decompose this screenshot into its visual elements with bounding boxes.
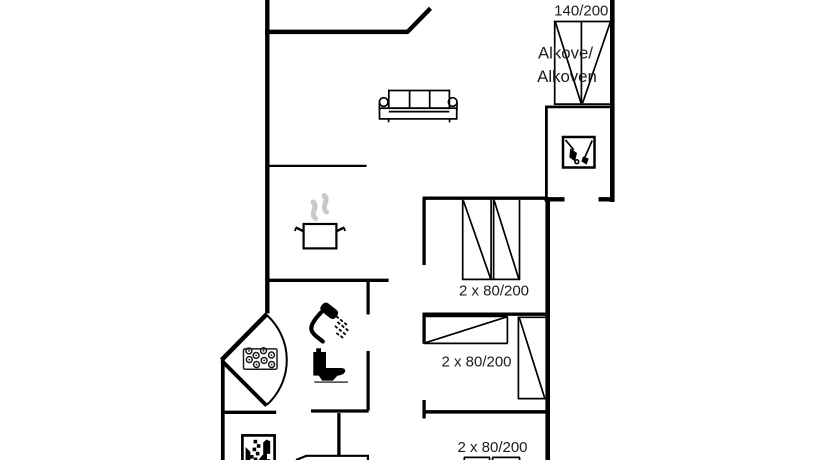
svg-text:2 x 80/200: 2 x 80/200 — [441, 354, 511, 371]
svg-text:Alkoven: Alkoven — [537, 67, 597, 86]
svg-text:140/200: 140/200 — [554, 3, 608, 20]
svg-text:2 x 80/200: 2 x 80/200 — [459, 283, 529, 300]
svg-text:Alkove/: Alkove/ — [538, 44, 593, 63]
svg-text:2 x 80/200: 2 x 80/200 — [457, 439, 527, 456]
